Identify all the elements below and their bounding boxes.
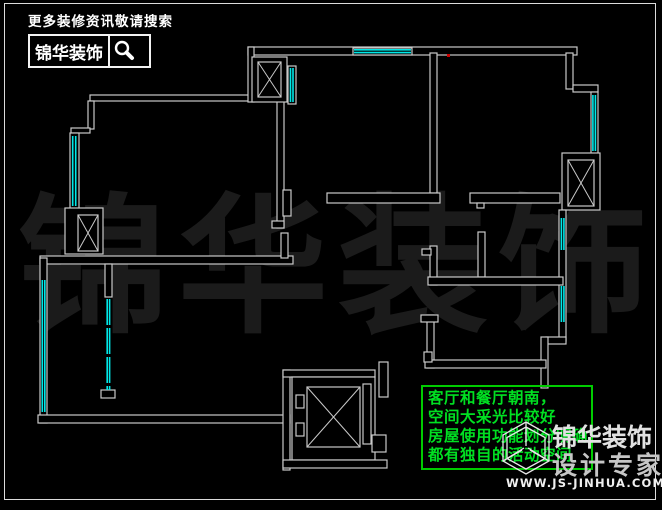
elevator-shaft [283,362,388,468]
ac-flue-box-top [252,57,287,102]
ac-flue-box-right [562,153,600,210]
search-icon [110,37,137,65]
sliding-door-bottomleft [107,299,109,390]
red-marker-dot [447,54,450,57]
header-brand: 更多装修资讯敬请搜索 锦华装饰 [28,10,173,68]
window-top-wall [353,48,412,55]
footer-website-url: WWW.JS-JINHUA.COM [506,476,662,490]
wall-interior-middle [283,53,563,368]
brand-search-box: 锦华装饰 [28,34,151,68]
wall-bottomleft-room [38,233,293,470]
wireframe-cube-icon [500,420,552,480]
brand-name: 锦华装饰 [30,39,108,64]
note-line: 客厅和餐厅朝南， [428,389,591,408]
ac-flue-box-left [65,208,103,254]
floorplan-screenshot: 锦 华 装 饰 [0,0,662,510]
window-top-flue-side [288,66,296,104]
header-tagline: 更多装修资讯敬请搜索 [28,10,173,30]
